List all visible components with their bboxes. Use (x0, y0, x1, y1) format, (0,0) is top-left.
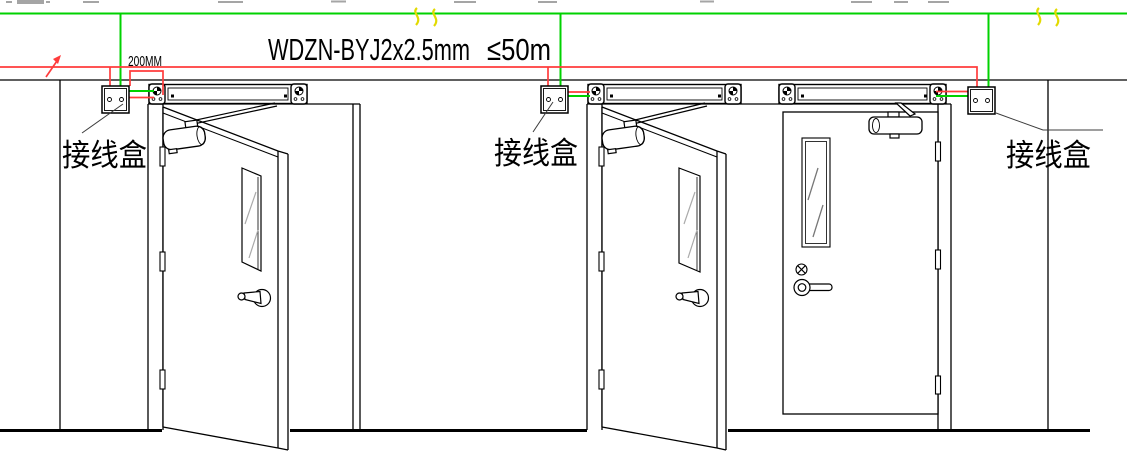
door-holder-rail-middle (588, 84, 741, 104)
open-door-left (160, 107, 288, 450)
door-lock-cylinder (796, 264, 807, 275)
dimension-label: 200MM (128, 53, 162, 70)
junction-box-label-left: 接线盒 (62, 138, 147, 173)
junction-box-middle (541, 86, 568, 113)
junction-box-right (968, 87, 995, 114)
junction-box-label-right: 接线盒 (1006, 138, 1091, 173)
door-window (242, 168, 261, 271)
door-closer-right (869, 103, 922, 138)
door-window (802, 138, 830, 247)
door-holder-rail-right (779, 84, 946, 104)
line-break-marks (415, 8, 1058, 26)
door-window (679, 168, 700, 272)
open-door-middle (599, 107, 726, 450)
junction-box-label-middle: 接线盒 (494, 136, 578, 171)
green-power-lines (0, 14, 1127, 97)
closed-door (783, 112, 941, 414)
diagram-canvas: 200MM WDZN-BYJ2x2.5mm ≤50m 接线盒 接线盒 接线盒 (0, 0, 1127, 457)
wiring-diagram: 200MM WDZN-BYJ2x2.5mm ≤50m 接线盒 接线盒 接线盒 (0, 0, 1127, 457)
door-holder-rail-left (149, 84, 307, 104)
red-feeder-arrow (46, 55, 61, 77)
cable-length-label: ≤50m (487, 32, 551, 67)
clipped-edge-artifacts (6, 2, 949, 3)
leader-lines (82, 102, 1103, 133)
cable-spec-label: WDZN-BYJ2x2.5mm (268, 32, 470, 67)
